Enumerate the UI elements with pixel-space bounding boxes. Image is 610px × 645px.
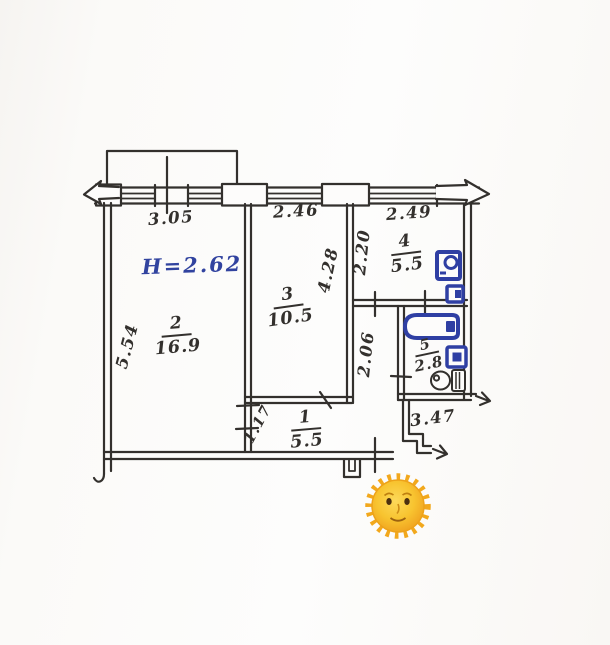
room-label-kitchen: 4 5.5: [387, 232, 425, 277]
room-number: 1: [289, 408, 321, 431]
dim-room3-width: 2.46: [272, 200, 319, 221]
room-area: 5.5: [389, 252, 425, 276]
floor-plan-photo: 3.05 2.46 2.49 H=2.62 5.54 4.28 2.20 2.0…: [0, 0, 610, 645]
dim-kitchen-width: 2.49: [385, 202, 432, 224]
window-glazing: [121, 194, 436, 199]
balcony-outline: [107, 151, 237, 189]
toilet-icon: [431, 370, 465, 391]
ceiling-height-note: H=2.62: [141, 251, 242, 279]
door-ticks: [375, 291, 425, 316]
room-label-hallway: 1 5.5: [288, 408, 325, 452]
wall-end-hook: [94, 474, 104, 482]
room-area: 5.5: [289, 429, 324, 452]
door-tick: [320, 392, 331, 408]
duct-protrusion: [344, 460, 360, 477]
kitchen-sink-icon: [447, 286, 463, 302]
sun-right-eye: [404, 498, 409, 505]
entrance-arrow: [433, 446, 447, 459]
wall-tick: [391, 376, 411, 377]
section-arrow-right: [436, 180, 489, 205]
room-area: 16.9: [154, 334, 202, 358]
room-label-living: 2 16.9: [152, 313, 202, 358]
sun-left-eye: [386, 498, 391, 505]
room-label-bedroom: 3 10.5: [263, 283, 315, 330]
door-swing-arrow: [476, 393, 490, 406]
stove-icon: [437, 252, 460, 279]
duct-protrusion-inner: [349, 460, 355, 471]
room-number: 2: [160, 314, 192, 337]
sun-with-face-emoji: [369, 477, 427, 535]
bath-sink-icon: [447, 347, 466, 367]
dim-balcony-window: 3.05: [147, 207, 194, 229]
